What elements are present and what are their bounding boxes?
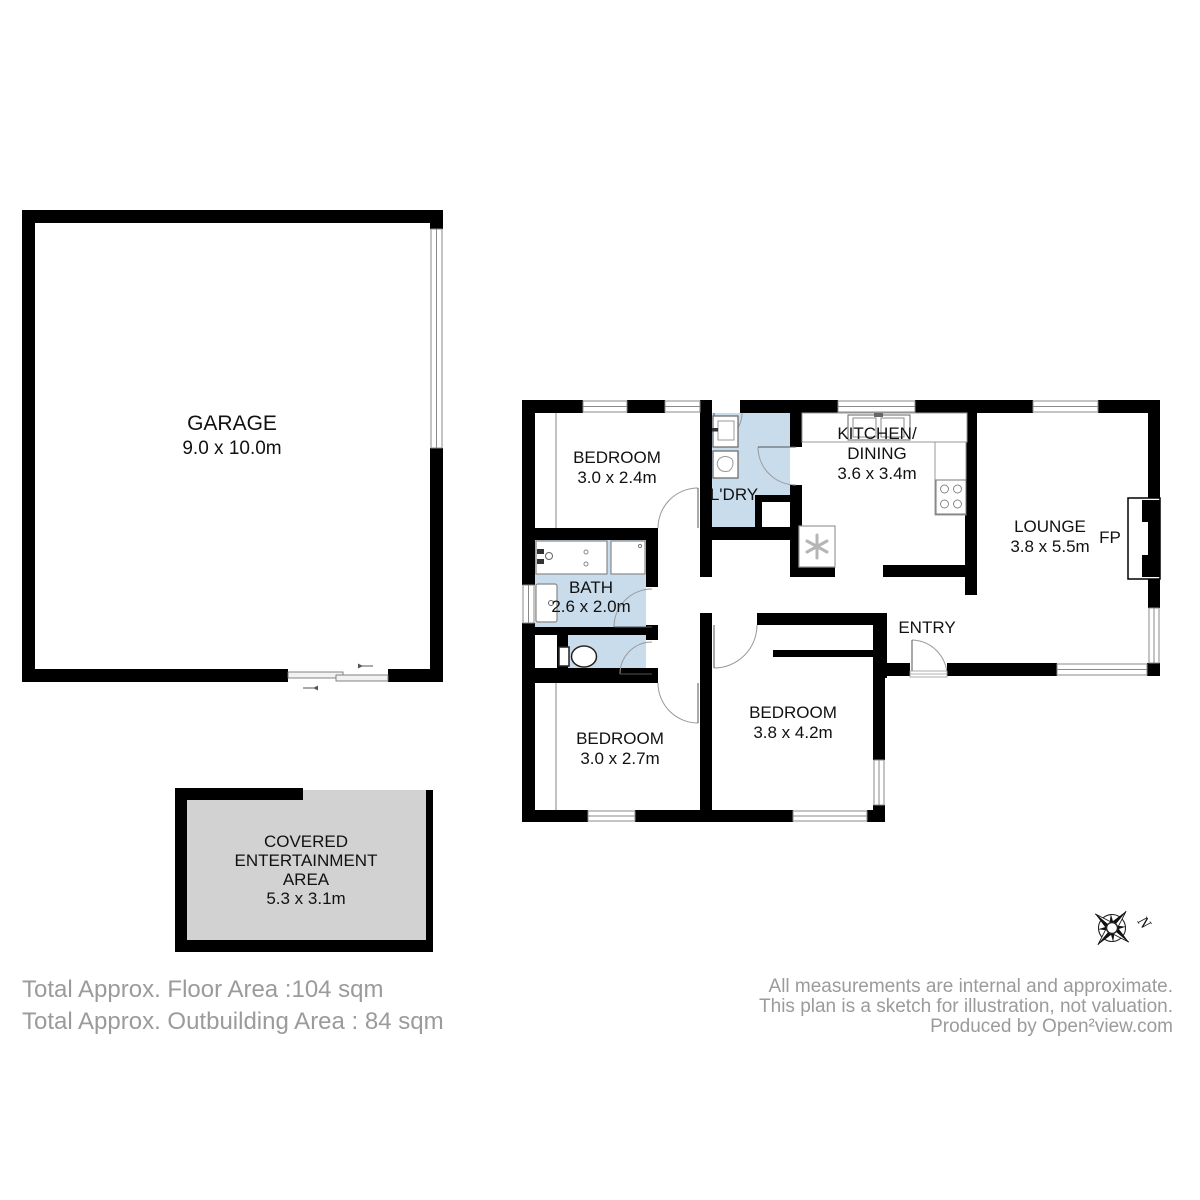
bedroom-top-dims: 3.0 x 2.4m [577, 468, 656, 487]
bedroom-top-name: BEDROOM [573, 448, 661, 467]
garage-dims: 9.0 x 10.0m [182, 438, 281, 459]
kitchen-label: KITCHEN/ DINING 3.6 x 3.4m [837, 424, 917, 483]
room-labels: GARAGE 9.0 x 10.0m BEDROOM 3.0 x 2.4m L'… [182, 412, 1121, 908]
garage-window [431, 229, 442, 448]
shower [611, 541, 645, 574]
garage-name: GARAGE [187, 412, 277, 435]
porch-window [1057, 664, 1147, 675]
disclaimer-line2: This plan is a sketch for illustration, … [759, 996, 1173, 1017]
bedroom-mid-label: BEDROOM 3.8 x 4.2m [749, 703, 837, 742]
toilet [559, 646, 597, 667]
lounge-name: LOUNGE [1014, 517, 1086, 536]
entry-name: ENTRY [898, 618, 955, 637]
kitchen-dims: 3.6 x 3.4m [837, 464, 916, 483]
compass-north-label: N [1133, 913, 1154, 934]
lounge-dims: 3.8 x 5.5m [1010, 537, 1089, 556]
covered-area-line3: AREA [283, 870, 330, 889]
lounge-side-window [1149, 608, 1159, 663]
washing-machine [713, 451, 738, 478]
floorplan-svg: GARAGE 9.0 x 10.0m BEDROOM 3.0 x 2.4m L'… [0, 0, 1200, 1200]
bedroom-bottom-name: BEDROOM [576, 729, 664, 748]
kitchen-name2: DINING [847, 444, 907, 463]
kitchen-name1: KITCHEN/ [837, 424, 917, 443]
disclaimer-line3: Produced by Open²view.com [930, 1016, 1173, 1037]
lounge-label: LOUNGE 3.8 x 5.5m [1010, 517, 1089, 556]
bath-window [523, 585, 534, 623]
garage-sliding-door [288, 664, 388, 691]
laundry-cupboard-nook [762, 502, 790, 527]
laundry-name: L'DRY [710, 485, 758, 504]
wood-heater [799, 526, 835, 567]
laundry-window [665, 401, 700, 412]
footer-annotations: Total Approx. Floor Area :104 sqm Total … [22, 976, 1173, 1037]
covered-area-line1: COVERED [264, 832, 348, 851]
kitchen-window [838, 401, 915, 412]
garage-label: GARAGE 9.0 x 10.0m [182, 412, 281, 459]
bedroom-mid-name: BEDROOM [749, 703, 837, 722]
disclaimer-line1: All measurements are internal and approx… [769, 976, 1173, 997]
bedroom-mid-side-window [874, 760, 884, 805]
laundry-tub [712, 416, 738, 447]
bedroom-mid-bottom-window [793, 811, 867, 821]
bedroom-bottom-dims: 3.0 x 2.7m [580, 749, 659, 768]
front-door [910, 640, 947, 677]
bath-dims: 2.6 x 2.0m [551, 597, 630, 616]
covered-area-line2: ENTERTAINMENT [235, 851, 378, 870]
bedroom-mid-door [714, 625, 757, 668]
bedroom-mid-dims: 3.8 x 4.2m [753, 723, 832, 742]
lounge-top-window [1033, 401, 1098, 412]
bath-name: BATH [569, 578, 613, 597]
bedroom-bottom-label: BEDROOM 3.0 x 2.7m [576, 729, 664, 768]
bedroom-bottom-door [658, 683, 698, 723]
total-outbuilding-area: Total Approx. Outbuilding Area : 84 sqm [22, 1008, 444, 1035]
bedroom-top-door [658, 488, 698, 528]
fireplace-abbr: FP [1099, 528, 1121, 547]
bathtub [536, 541, 607, 574]
bedroom-top-window [583, 401, 627, 412]
wardrobe-front-line [773, 650, 873, 657]
compass-icon: N [1081, 888, 1156, 964]
stove [936, 480, 966, 514]
total-floor-area: Total Approx. Floor Area :104 sqm [22, 976, 384, 1003]
fireplace [1128, 498, 1160, 579]
bedroom-top-label: BEDROOM 3.0 x 2.4m [573, 448, 661, 487]
covered-area-dims: 5.3 x 3.1m [266, 889, 345, 908]
floorplan-page: GARAGE 9.0 x 10.0m BEDROOM 3.0 x 2.4m L'… [0, 0, 1200, 1200]
bedroom-bottom-window [588, 811, 635, 821]
